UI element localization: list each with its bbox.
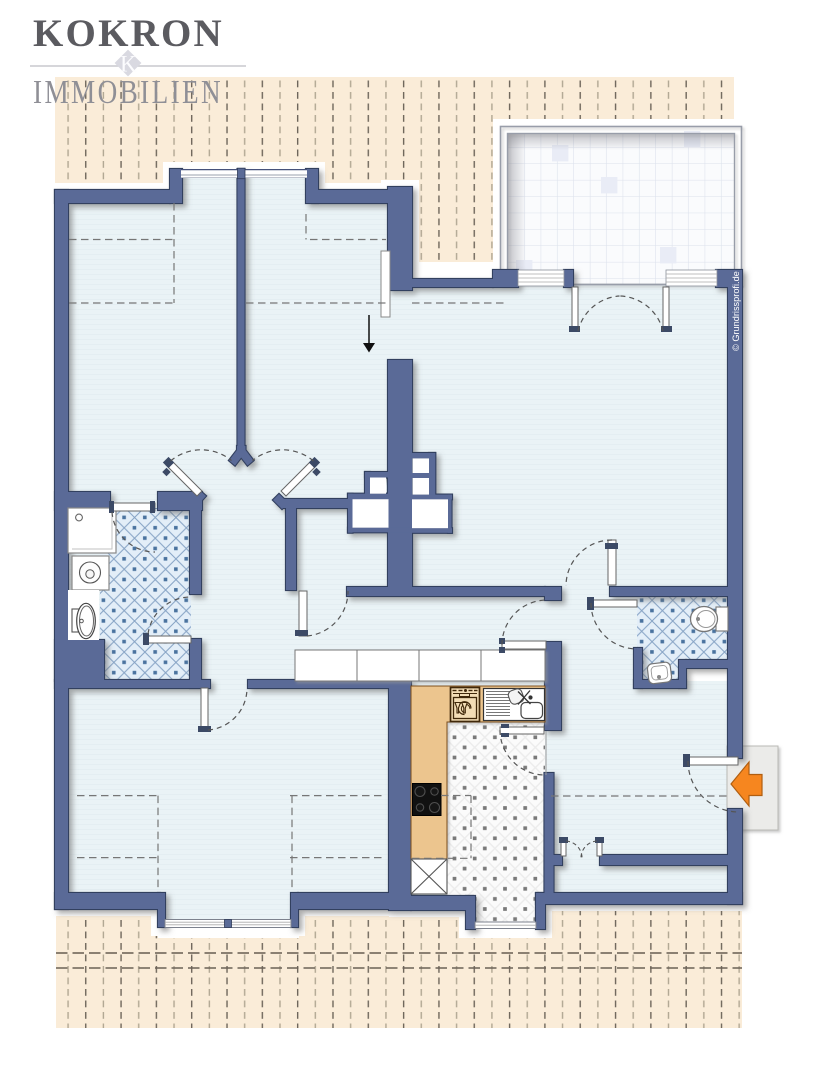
svg-text:KOKRON: KOKRON	[33, 12, 224, 55]
svg-text:IMMOBILIEN: IMMOBILIEN	[33, 73, 223, 111]
svg-text:© Grundrissprofi.de: © Grundrissprofi.de	[731, 271, 741, 351]
